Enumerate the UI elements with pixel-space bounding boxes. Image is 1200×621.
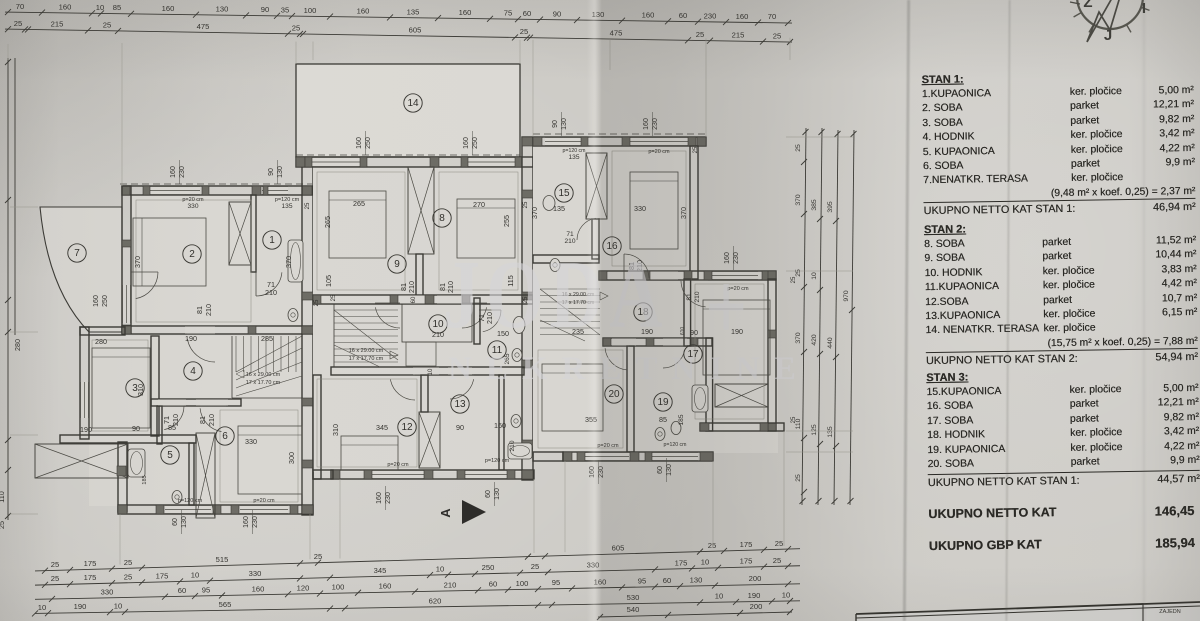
- svg-text:330: 330: [245, 437, 257, 446]
- svg-text:25: 25: [314, 552, 322, 561]
- svg-text:175: 175: [675, 558, 688, 567]
- svg-text:10: 10: [811, 272, 818, 280]
- svg-text:215: 215: [51, 19, 64, 28]
- svg-text:71: 71: [162, 416, 171, 424]
- svg-text:250: 250: [482, 563, 495, 572]
- svg-text:475: 475: [197, 22, 210, 31]
- svg-text:110: 110: [0, 491, 6, 502]
- svg-text:25: 25: [0, 521, 6, 529]
- svg-text:25: 25: [795, 474, 802, 482]
- svg-text:25: 25: [773, 556, 781, 565]
- svg-text:75: 75: [504, 9, 512, 18]
- svg-text:280: 280: [13, 339, 22, 351]
- svg-text:230: 230: [598, 466, 605, 478]
- svg-text:310: 310: [331, 424, 340, 436]
- svg-text:17 x 17.70 cm: 17 x 17.70 cm: [349, 356, 384, 362]
- svg-text:10: 10: [96, 3, 104, 12]
- svg-text:90: 90: [690, 328, 698, 337]
- svg-text:420: 420: [811, 334, 818, 346]
- svg-text:100: 100: [332, 583, 345, 592]
- svg-text:135: 135: [827, 426, 834, 438]
- svg-text:605: 605: [409, 25, 422, 34]
- svg-text:60: 60: [489, 580, 497, 589]
- svg-text:200: 200: [750, 602, 763, 611]
- svg-text:210: 210: [265, 288, 277, 297]
- svg-text:90: 90: [456, 423, 464, 432]
- svg-text:190: 190: [748, 591, 761, 600]
- svg-text:175: 175: [740, 540, 753, 549]
- svg-text:160: 160: [162, 4, 175, 13]
- svg-text:250: 250: [472, 137, 479, 149]
- svg-text:370: 370: [679, 207, 688, 219]
- svg-text:60: 60: [523, 9, 531, 18]
- svg-text:25: 25: [795, 269, 802, 277]
- svg-text:16 x 29.00 cm: 16 x 29.00 cm: [349, 348, 384, 354]
- svg-text:90: 90: [132, 424, 140, 433]
- svg-text:210: 210: [444, 580, 457, 589]
- svg-text:330: 330: [634, 204, 646, 213]
- svg-text:280: 280: [95, 337, 107, 346]
- svg-text:230: 230: [179, 166, 186, 178]
- svg-text:605: 605: [612, 544, 625, 553]
- svg-text:135: 135: [553, 204, 565, 213]
- svg-text:160: 160: [59, 2, 72, 11]
- svg-text:25: 25: [124, 572, 132, 581]
- svg-text:6: 6: [222, 431, 228, 442]
- svg-text:210: 210: [407, 281, 416, 293]
- svg-text:60: 60: [485, 490, 492, 498]
- svg-text:60: 60: [657, 466, 664, 474]
- svg-text:25: 25: [124, 558, 132, 567]
- svg-text:230: 230: [704, 11, 717, 20]
- svg-text:95: 95: [638, 576, 646, 585]
- svg-text:160: 160: [243, 516, 250, 528]
- svg-text:250: 250: [102, 295, 109, 307]
- svg-text:250: 250: [365, 137, 372, 149]
- svg-text:160: 160: [594, 577, 607, 586]
- svg-text:175: 175: [740, 557, 753, 566]
- svg-text:370: 370: [133, 256, 142, 268]
- svg-text:330: 330: [101, 587, 114, 596]
- svg-text:16 x 29.00 cm: 16 x 29.00 cm: [246, 372, 281, 378]
- svg-text:440: 440: [827, 337, 834, 349]
- svg-text:175: 175: [156, 571, 169, 580]
- svg-text:190: 190: [80, 425, 92, 434]
- svg-text:255: 255: [502, 215, 511, 227]
- svg-text:970: 970: [843, 290, 850, 302]
- svg-text:210: 210: [204, 304, 213, 316]
- svg-text:25: 25: [520, 27, 528, 36]
- svg-text:230: 230: [252, 516, 259, 528]
- svg-text:160: 160: [642, 11, 655, 20]
- svg-text:60: 60: [663, 576, 671, 585]
- svg-text:17 x 17.70 cm: 17 x 17.70 cm: [246, 380, 281, 386]
- svg-text:130: 130: [592, 10, 605, 19]
- svg-text:25: 25: [51, 574, 59, 583]
- svg-text:10: 10: [191, 571, 199, 580]
- svg-text:85: 85: [659, 415, 667, 424]
- svg-text:25: 25: [531, 562, 539, 571]
- svg-text:25: 25: [331, 294, 337, 301]
- svg-text:565: 565: [219, 600, 232, 609]
- svg-text:130: 130: [690, 575, 703, 584]
- svg-text:5: 5: [167, 450, 173, 461]
- svg-text:610: 610: [680, 327, 686, 336]
- svg-text:90: 90: [552, 120, 559, 128]
- svg-text:215: 215: [732, 31, 745, 40]
- svg-text:135: 135: [281, 203, 292, 210]
- svg-text:130: 130: [181, 516, 188, 528]
- svg-text:210: 210: [207, 414, 216, 426]
- svg-text:25: 25: [696, 30, 704, 39]
- svg-text:385: 385: [811, 199, 818, 211]
- svg-text:9: 9: [394, 259, 400, 270]
- svg-text:300: 300: [287, 452, 296, 464]
- svg-text:270: 270: [473, 200, 485, 209]
- svg-text:1: 1: [269, 235, 275, 246]
- svg-text:14: 14: [407, 98, 419, 109]
- svg-text:p=20 cm: p=20 cm: [597, 443, 619, 449]
- svg-text:330: 330: [187, 203, 198, 210]
- svg-text:10: 10: [701, 558, 709, 567]
- svg-text:160: 160: [170, 166, 177, 178]
- svg-text:515: 515: [216, 555, 229, 564]
- svg-text:90: 90: [553, 9, 561, 18]
- svg-text:60: 60: [178, 586, 186, 595]
- svg-text:10: 10: [428, 368, 434, 375]
- svg-text:60: 60: [411, 296, 417, 303]
- svg-text:81: 81: [195, 306, 204, 314]
- svg-text:p=120 cm: p=120 cm: [664, 442, 687, 448]
- svg-text:210: 210: [694, 291, 701, 302]
- svg-text:190: 190: [74, 602, 87, 611]
- svg-text:p=120 cm: p=120 cm: [178, 498, 203, 504]
- svg-text:620: 620: [429, 596, 442, 605]
- svg-text:81: 81: [686, 293, 693, 301]
- svg-text:25: 25: [314, 299, 320, 306]
- svg-text:10: 10: [715, 592, 723, 601]
- svg-text:285: 285: [261, 334, 273, 343]
- svg-text:160: 160: [494, 421, 506, 430]
- svg-text:135: 135: [568, 154, 579, 161]
- svg-text:345: 345: [376, 423, 388, 432]
- svg-text:4: 4: [190, 366, 196, 377]
- svg-text:160: 160: [93, 295, 100, 307]
- svg-text:95: 95: [552, 578, 560, 587]
- svg-text:160: 160: [736, 12, 749, 21]
- svg-text:7: 7: [74, 248, 80, 259]
- svg-text:530: 530: [627, 593, 640, 602]
- svg-text:90: 90: [261, 5, 269, 14]
- svg-text:355: 355: [585, 415, 597, 424]
- svg-text:160: 160: [379, 582, 392, 591]
- svg-text:210: 210: [171, 414, 180, 426]
- svg-text:p=120 cm: p=120 cm: [485, 458, 510, 464]
- svg-text:160: 160: [376, 492, 383, 504]
- svg-text:265: 265: [353, 199, 365, 208]
- svg-text:160: 160: [459, 8, 472, 17]
- svg-text:8: 8: [439, 213, 445, 224]
- svg-text:105: 105: [324, 275, 333, 287]
- svg-text:200: 200: [749, 574, 762, 583]
- svg-text:81: 81: [198, 416, 207, 424]
- svg-text:175: 175: [84, 573, 97, 582]
- svg-text:70: 70: [768, 12, 776, 21]
- svg-text:370: 370: [795, 194, 802, 206]
- svg-text:130: 130: [666, 464, 673, 476]
- svg-text:25: 25: [775, 539, 783, 548]
- svg-text:125: 125: [811, 424, 818, 436]
- svg-text:475: 475: [610, 29, 623, 38]
- svg-text:160: 160: [463, 137, 470, 149]
- svg-text:210: 210: [509, 440, 516, 451]
- svg-text:160: 160: [356, 137, 363, 149]
- svg-text:130: 130: [561, 118, 568, 130]
- svg-text:25: 25: [305, 202, 311, 209]
- svg-text:230: 230: [385, 492, 392, 504]
- svg-text:25: 25: [773, 31, 781, 40]
- svg-text:100: 100: [304, 6, 317, 15]
- svg-text:100: 100: [516, 579, 529, 588]
- svg-text:130: 130: [216, 5, 229, 14]
- svg-text:70: 70: [16, 2, 24, 11]
- svg-text:160: 160: [252, 584, 265, 593]
- svg-text:330: 330: [249, 569, 262, 578]
- svg-text:p=20 cm: p=20 cm: [387, 462, 409, 468]
- svg-text:370: 370: [530, 207, 539, 219]
- svg-text:25: 25: [693, 146, 699, 153]
- svg-text:265: 265: [323, 216, 332, 228]
- svg-text:60: 60: [679, 11, 687, 20]
- svg-text:p=20 cm: p=20 cm: [253, 498, 275, 504]
- svg-text:15: 15: [558, 188, 570, 199]
- svg-text:10: 10: [38, 603, 46, 612]
- svg-text:85: 85: [113, 3, 121, 12]
- svg-text:25: 25: [523, 201, 529, 208]
- svg-text:130: 130: [277, 166, 284, 178]
- svg-text:2: 2: [189, 249, 195, 260]
- svg-text:25: 25: [791, 276, 797, 283]
- svg-text:370: 370: [795, 332, 802, 344]
- svg-text:25: 25: [795, 144, 802, 152]
- svg-text:190: 190: [185, 334, 197, 343]
- svg-text:120: 120: [297, 583, 310, 592]
- svg-text:310: 310: [136, 384, 145, 396]
- svg-text:540: 540: [627, 605, 640, 614]
- svg-text:A: A: [438, 508, 453, 518]
- svg-text:345: 345: [374, 566, 387, 575]
- svg-text:185: 185: [142, 475, 148, 484]
- svg-text:95: 95: [202, 585, 210, 594]
- svg-text:p=20 cm: p=20 cm: [648, 149, 670, 155]
- svg-text:35: 35: [281, 5, 289, 14]
- svg-text:10: 10: [114, 602, 122, 611]
- svg-text:12: 12: [401, 422, 413, 433]
- svg-text:160: 160: [589, 466, 596, 478]
- svg-text:25: 25: [708, 541, 716, 550]
- svg-text:90: 90: [268, 168, 275, 176]
- svg-text:10: 10: [436, 564, 444, 573]
- svg-text:160: 160: [357, 7, 370, 16]
- svg-text:230: 230: [652, 118, 659, 130]
- svg-text:185: 185: [678, 414, 685, 425]
- svg-text:25: 25: [791, 416, 797, 423]
- svg-text:25: 25: [51, 560, 59, 569]
- svg-text:20: 20: [608, 389, 620, 400]
- svg-text:25: 25: [292, 23, 300, 32]
- svg-text:13: 13: [454, 399, 466, 410]
- svg-text:395: 395: [827, 201, 834, 213]
- svg-text:25: 25: [103, 20, 111, 29]
- svg-text:60: 60: [172, 518, 179, 526]
- svg-text:25: 25: [14, 19, 22, 28]
- svg-text:19: 19: [657, 397, 669, 408]
- svg-text:10: 10: [782, 591, 790, 600]
- svg-text:330: 330: [587, 560, 600, 569]
- svg-text:135: 135: [407, 7, 420, 16]
- svg-text:130: 130: [494, 488, 501, 500]
- svg-text:71: 71: [566, 231, 574, 238]
- svg-text:160: 160: [643, 118, 650, 130]
- svg-text:175: 175: [84, 559, 97, 568]
- svg-text:370: 370: [284, 256, 293, 268]
